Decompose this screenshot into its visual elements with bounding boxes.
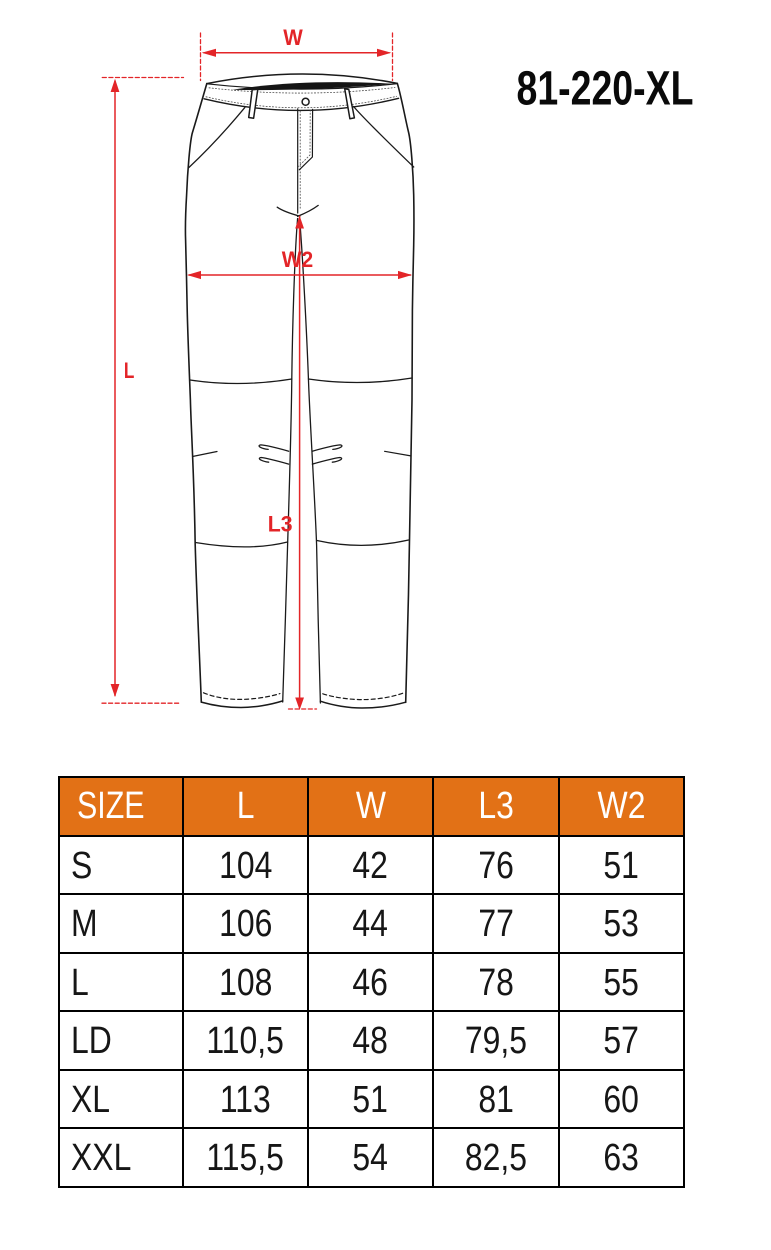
svg-text:W: W bbox=[283, 25, 303, 50]
svg-text:W2: W2 bbox=[282, 247, 314, 272]
svg-text:L: L bbox=[124, 358, 134, 383]
svg-text:L3: L3 bbox=[268, 512, 293, 537]
svg-text:81-220-XL: 81-220-XL bbox=[517, 62, 694, 116]
